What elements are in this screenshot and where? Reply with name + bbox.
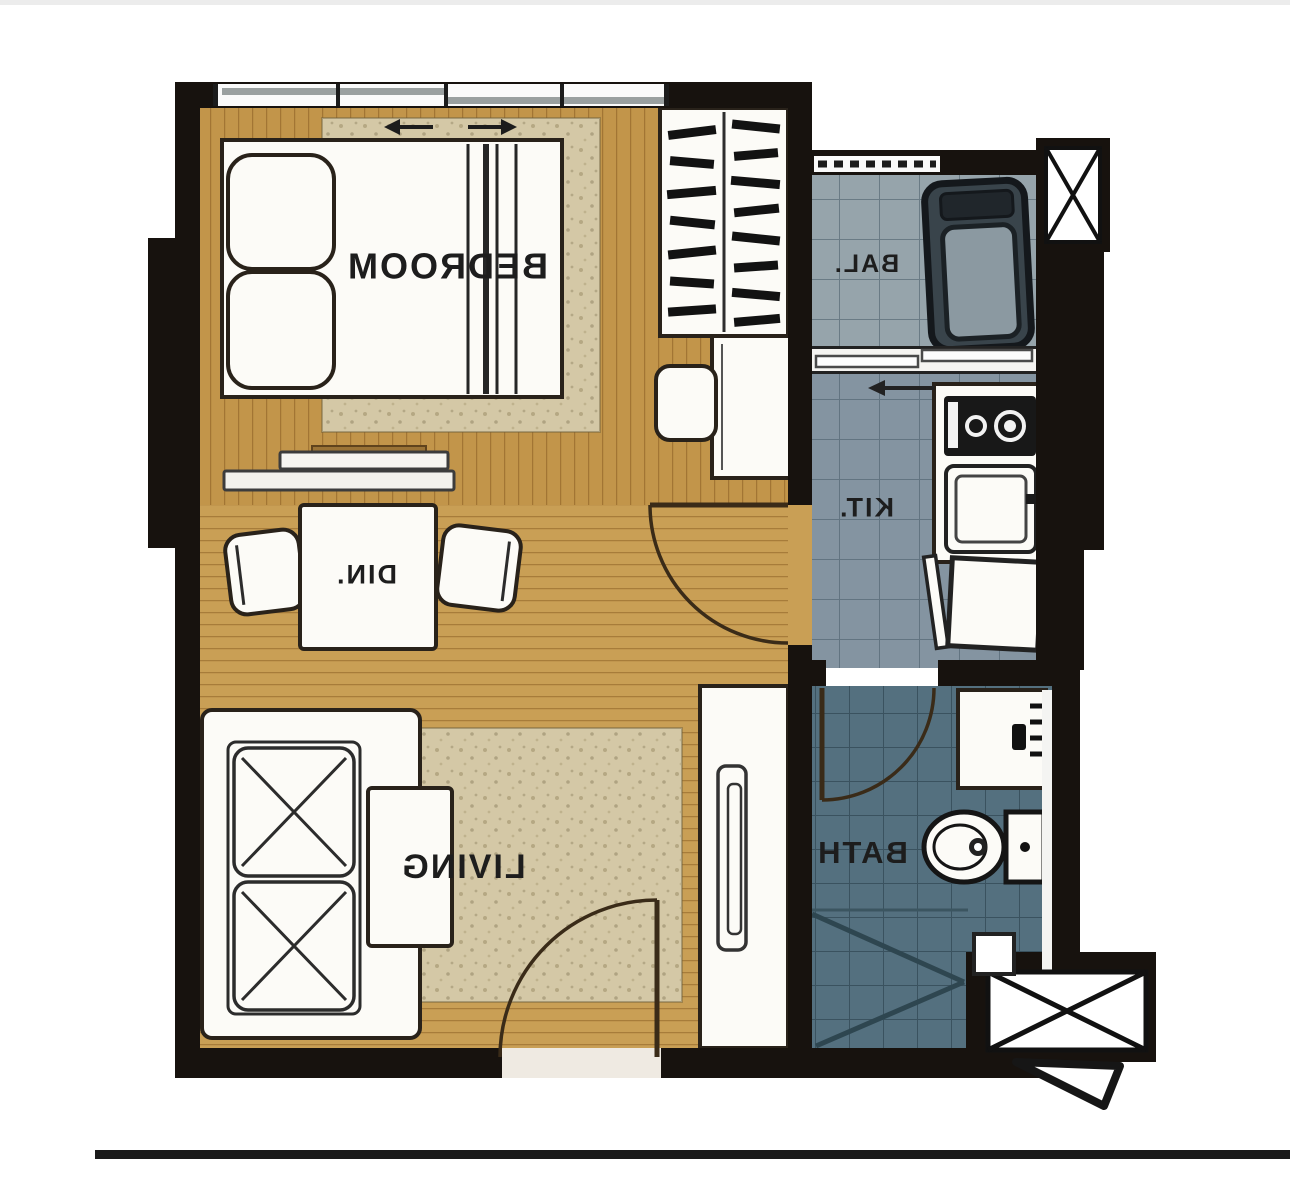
tv-console [700, 686, 788, 1048]
entrance-threshold [500, 1048, 663, 1078]
desk [712, 336, 790, 478]
fridge [948, 558, 1042, 651]
washer-drum [942, 224, 1020, 340]
stove-control [948, 402, 958, 448]
label-bath: BATH [816, 835, 908, 870]
wall-left [175, 82, 200, 1078]
floorplan-page: BEDROOM DIN. LIVING KIT. BAL. BATH [0, 0, 1290, 1188]
window-glass [444, 97, 664, 104]
wall-divider-lower [788, 645, 812, 1078]
window-glass [222, 88, 444, 95]
toilet-flush-dot [974, 843, 982, 851]
burner-icon [1004, 420, 1016, 432]
desk-chair [656, 366, 716, 440]
photo-bottom-line [95, 1150, 1290, 1159]
pillow [228, 155, 334, 269]
slider-panel [816, 356, 918, 367]
hall-doorway-floor [788, 505, 812, 645]
shaft-niche [974, 934, 1014, 974]
kitchen-counter [934, 384, 1042, 562]
wall-pillar [148, 238, 198, 548]
label-balcony: BAL. [833, 250, 899, 278]
floorplan-svg: BEDROOM DIN. LIVING KIT. BAL. BATH [0, 0, 1290, 1188]
washer-unit [924, 179, 1033, 350]
wardrobe [660, 108, 788, 336]
sink [946, 466, 1036, 552]
balcony-vent [814, 156, 940, 172]
balcony-slider [812, 346, 1036, 374]
label-kitchen: KIT. [838, 492, 894, 522]
top-window [213, 84, 669, 106]
cistern-button [1020, 842, 1030, 852]
slider-rail [812, 346, 1036, 349]
pillow [228, 272, 334, 388]
washer-panel [940, 190, 1013, 220]
wall-divider-upper [788, 108, 812, 505]
faucet-icon [1012, 724, 1026, 750]
label-dining: DIN. [335, 559, 397, 589]
photo-top-edge [0, 0, 1290, 5]
label-bedroom: BEDROOM [346, 246, 548, 287]
wall-bottom-left [175, 1048, 502, 1078]
dining-chair [435, 524, 522, 613]
slider-panel [922, 350, 1032, 361]
dining-chair [223, 528, 306, 616]
label-living: LIVING [400, 848, 525, 886]
slider-rail [812, 371, 1036, 374]
toilet-bowl [924, 812, 1004, 882]
wall-right-mid [1036, 550, 1084, 670]
wall-bath-top-left [788, 660, 826, 686]
partition-panel [224, 471, 454, 490]
partition-panel [280, 452, 448, 469]
